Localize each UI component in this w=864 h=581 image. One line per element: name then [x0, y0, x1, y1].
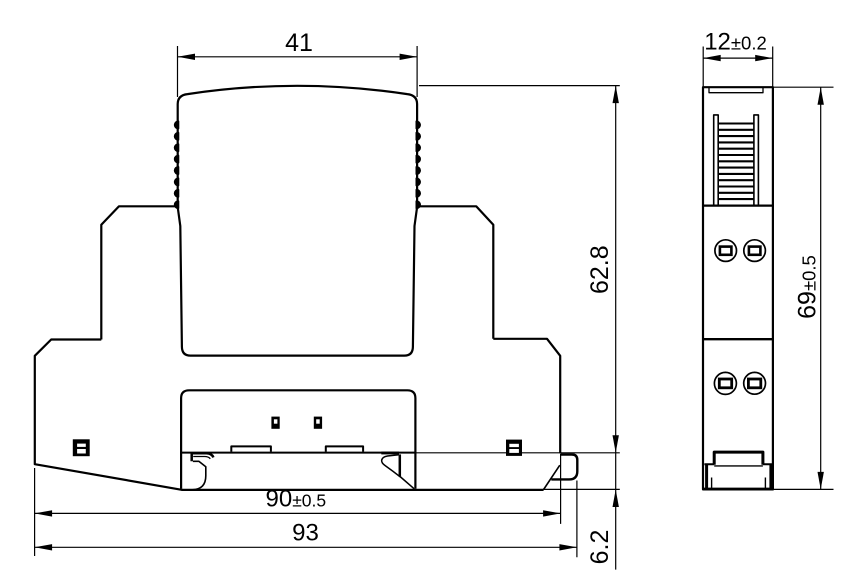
- svg-text:12±0.2: 12±0.2: [704, 28, 767, 55]
- svg-text:41: 41: [285, 29, 313, 57]
- svg-text:93: 93: [292, 520, 319, 547]
- svg-text:69±0.5: 69±0.5: [794, 255, 822, 319]
- svg-text:6.2: 6.2: [586, 530, 614, 565]
- svg-text:90±0.5: 90±0.5: [266, 485, 327, 512]
- svg-text:62.8: 62.8: [586, 245, 614, 294]
